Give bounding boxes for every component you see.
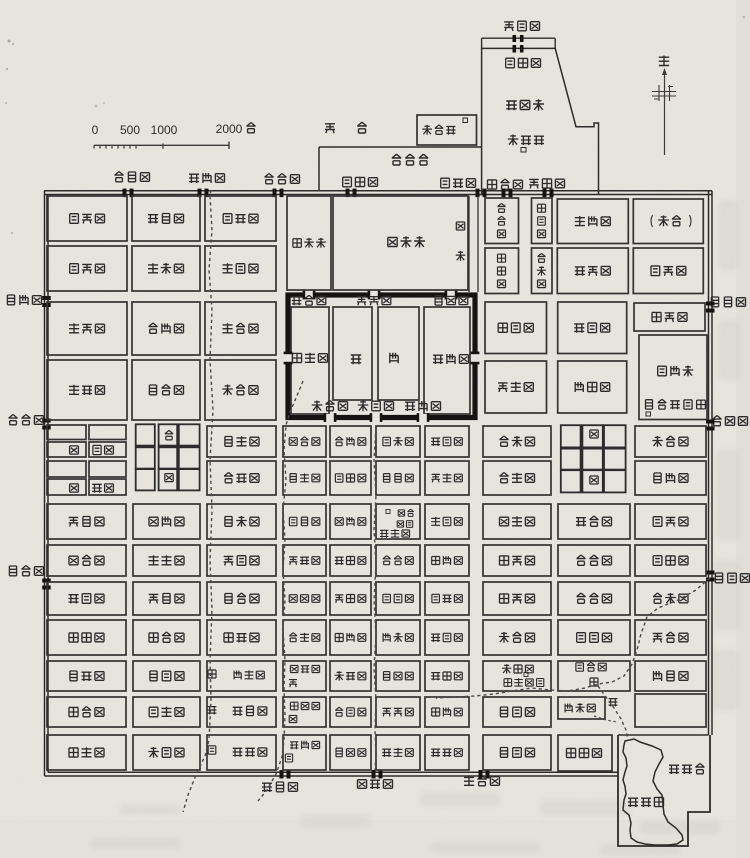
svg-text:2000: 2000 xyxy=(216,122,243,136)
svg-text:0: 0 xyxy=(92,123,99,137)
svg-text:500: 500 xyxy=(120,123,140,137)
svg-text:1000: 1000 xyxy=(151,123,178,137)
